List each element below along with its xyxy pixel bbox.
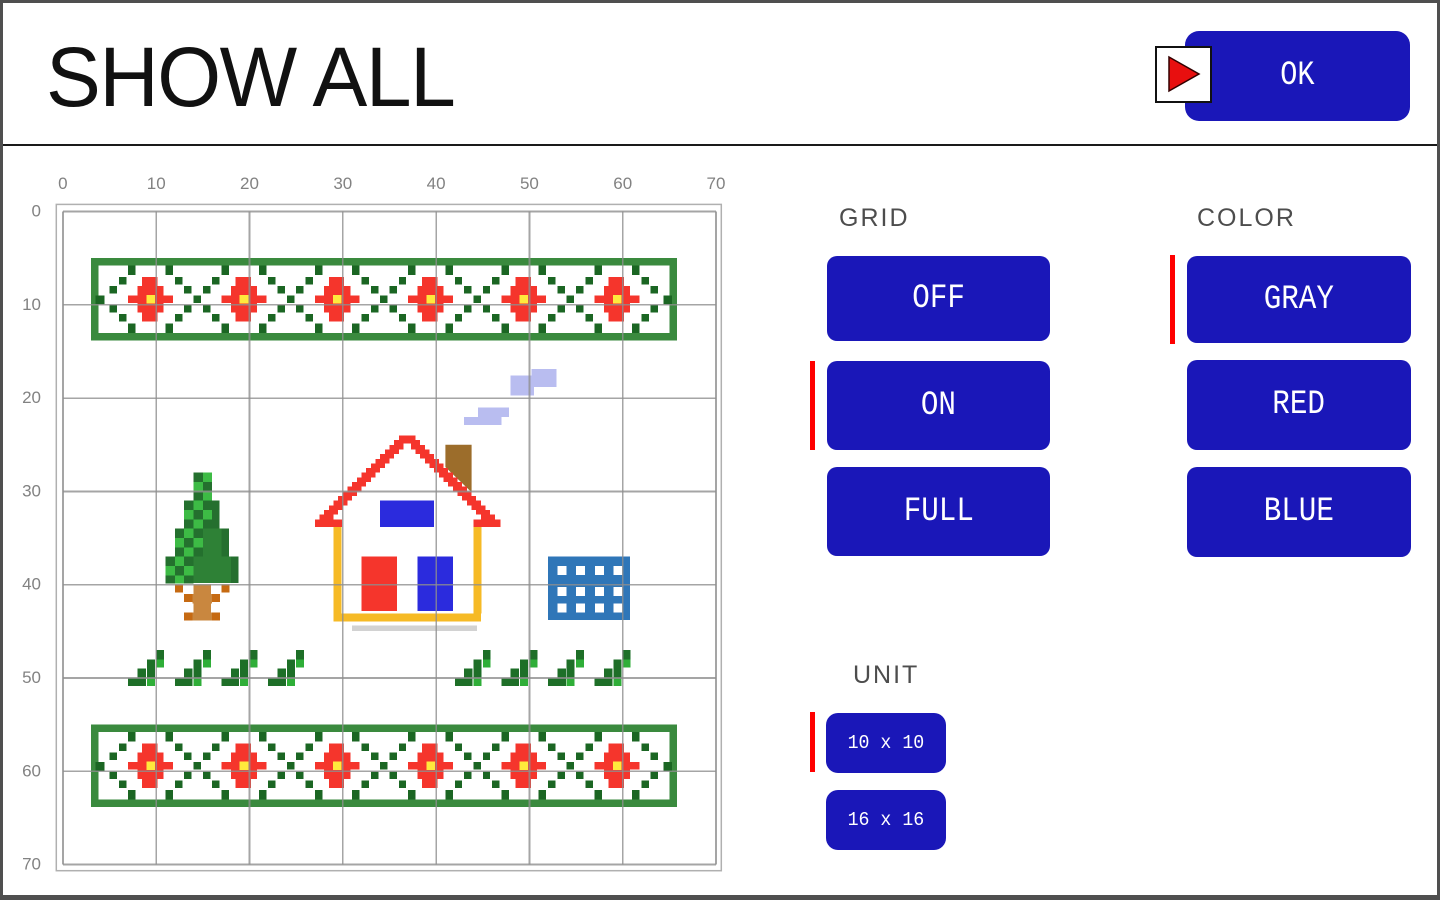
svg-text:40: 40 <box>427 174 446 193</box>
svg-text:60: 60 <box>22 761 41 780</box>
svg-text:40: 40 <box>22 575 41 594</box>
svg-text:10: 10 <box>147 174 166 193</box>
svg-text:70: 70 <box>22 855 41 874</box>
svg-text:20: 20 <box>22 388 41 407</box>
svg-text:30: 30 <box>22 481 41 500</box>
svg-text:50: 50 <box>520 174 539 193</box>
svg-text:50: 50 <box>22 668 41 687</box>
svg-text:0: 0 <box>58 174 67 193</box>
svg-text:70: 70 <box>707 174 726 193</box>
svg-text:10: 10 <box>22 295 41 314</box>
svg-text:0: 0 <box>32 202 41 221</box>
svg-text:30: 30 <box>333 174 352 193</box>
svg-text:20: 20 <box>240 174 259 193</box>
svg-text:60: 60 <box>613 174 632 193</box>
